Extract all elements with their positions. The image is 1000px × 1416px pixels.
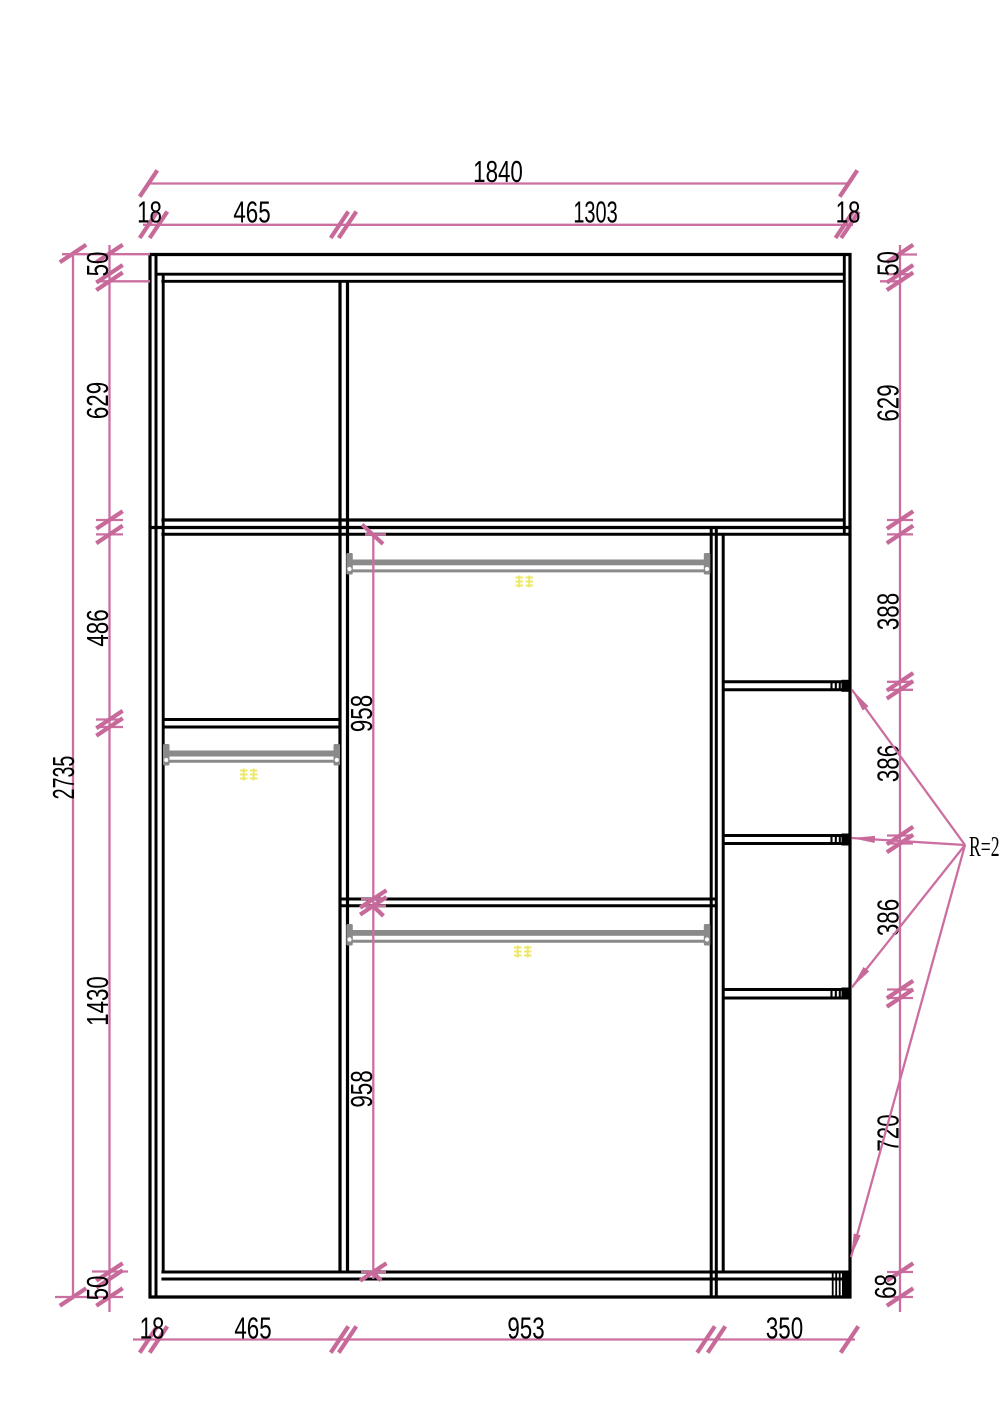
svg-text:1430: 1430 [81, 976, 115, 1026]
svg-text:1840: 1840 [473, 155, 523, 189]
svg-text:68: 68 [869, 1274, 903, 1299]
svg-text:388: 388 [871, 593, 905, 630]
svg-text:629: 629 [81, 382, 115, 419]
svg-text:50: 50 [871, 251, 905, 276]
svg-text:18: 18 [140, 1311, 165, 1345]
svg-text:350: 350 [766, 1311, 803, 1345]
svg-text:1303: 1303 [573, 197, 617, 230]
svg-text:953: 953 [507, 1311, 544, 1345]
svg-text:958: 958 [345, 695, 379, 732]
svg-text:R=25: R=25 [969, 832, 1000, 863]
svg-text:465: 465 [234, 1311, 271, 1345]
svg-text:386: 386 [871, 899, 905, 936]
svg-text:465: 465 [233, 195, 270, 229]
svg-text:18: 18 [836, 195, 861, 229]
svg-text:50: 50 [81, 1276, 115, 1301]
svg-text:958: 958 [345, 1070, 379, 1107]
svg-text:629: 629 [871, 384, 905, 421]
svg-text:18: 18 [137, 195, 162, 229]
svg-text:50: 50 [81, 252, 115, 277]
svg-text:486: 486 [81, 609, 115, 646]
svg-text:386: 386 [871, 745, 905, 782]
svg-text:2735: 2735 [48, 756, 81, 800]
